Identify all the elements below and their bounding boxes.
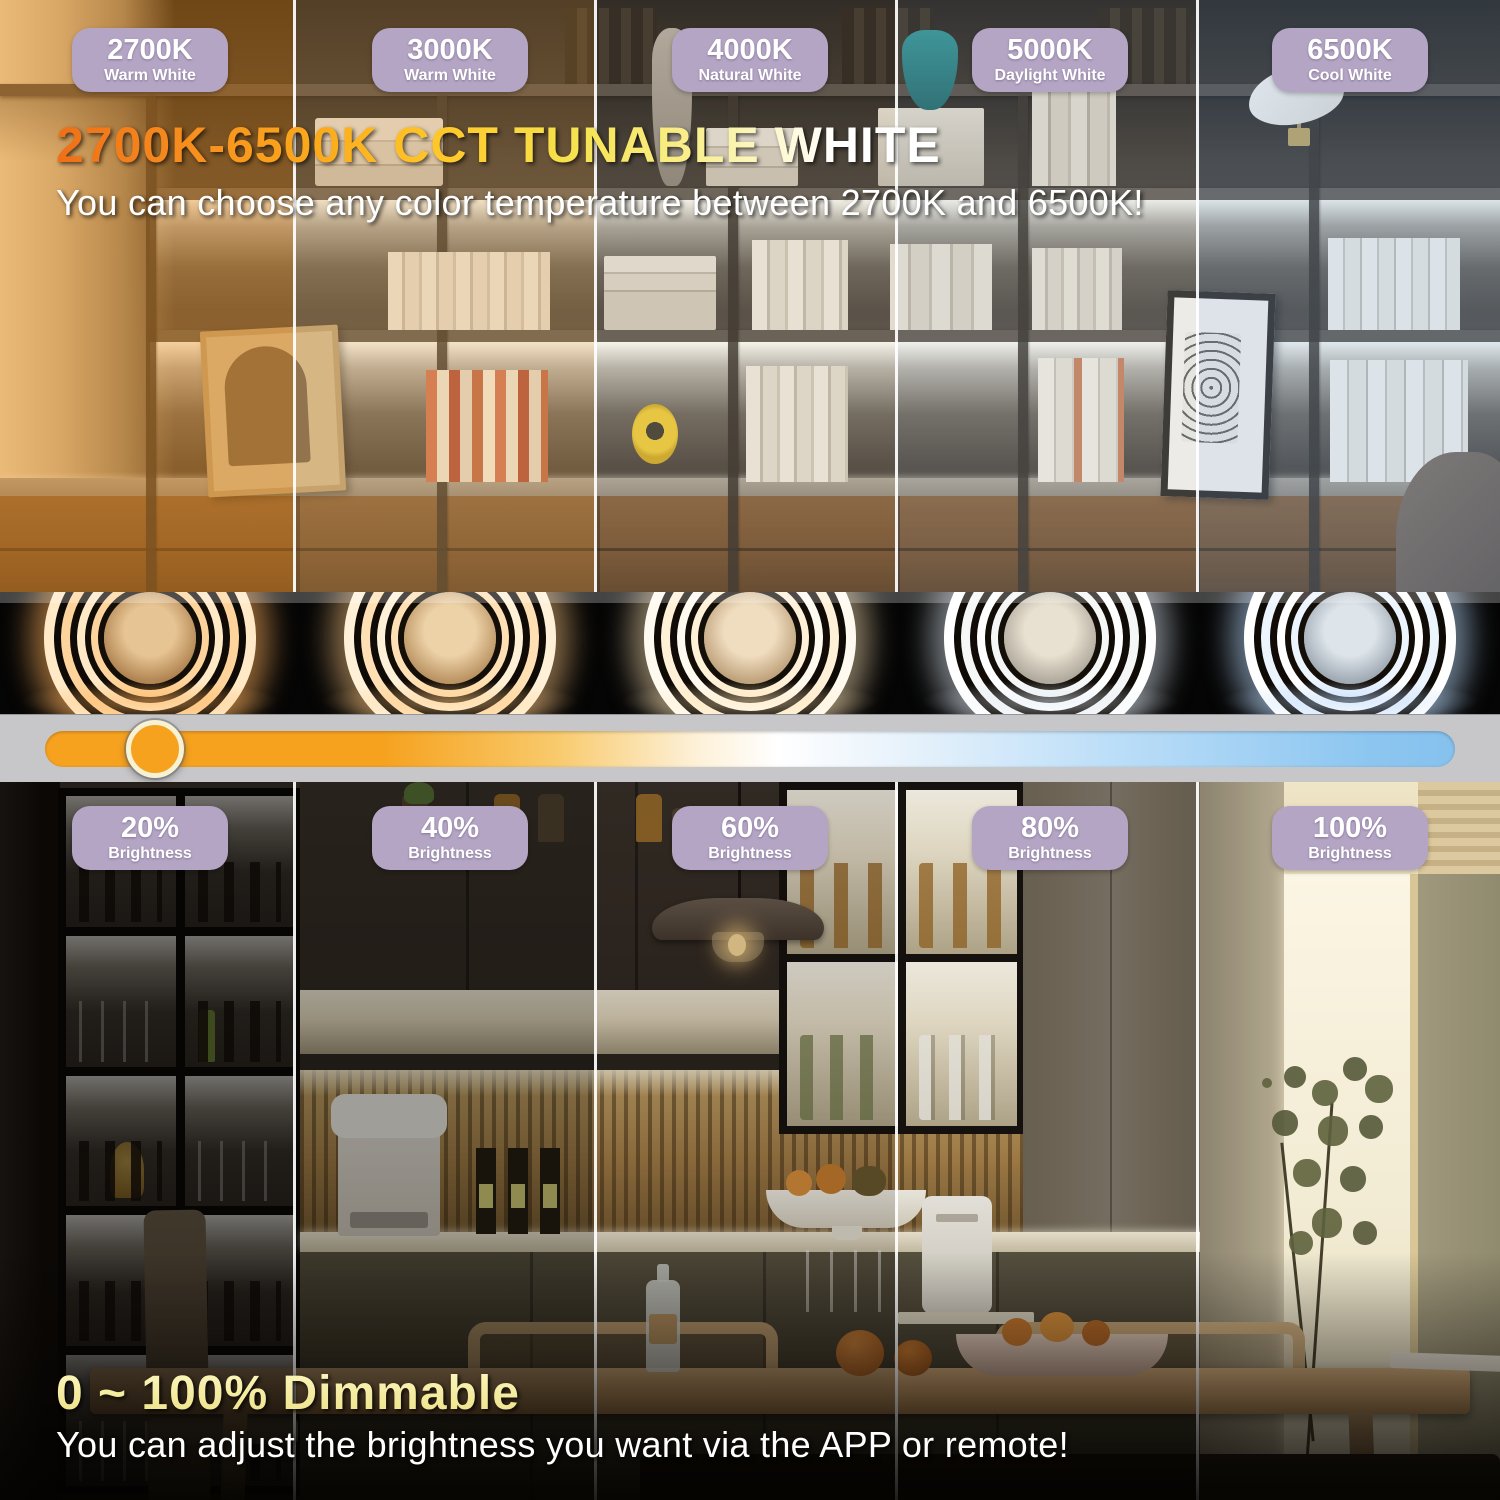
column-divider <box>293 0 296 592</box>
led-coil <box>104 592 196 684</box>
led-spool-row <box>0 592 1500 714</box>
led-spool-3000k <box>300 592 602 714</box>
badge-4000k: 4000K Natural White <box>672 28 828 92</box>
badge-value: 100% <box>1313 813 1387 844</box>
badge-value: 6500K <box>1307 35 1392 66</box>
badge-value: 5000K <box>1007 35 1092 66</box>
badge-60-brightness: 60% Brightness <box>672 806 828 870</box>
badge-label: Cool White <box>1308 66 1392 85</box>
column-divider <box>895 0 898 592</box>
cct-subtitle: You can choose any color temperature bet… <box>56 182 1144 224</box>
dimming-photo-section: 20% Brightness 40% Brightness 60% Bright… <box>0 782 1500 1500</box>
badge-label: Warm White <box>104 66 196 85</box>
badge-label: Natural White <box>698 66 801 85</box>
badge-3000k: 3000K Warm White <box>372 28 528 92</box>
cct-slider-track <box>45 731 1455 767</box>
dimmable-subtitle: You can adjust the brightness you want v… <box>56 1424 1069 1466</box>
column-divider <box>594 0 597 592</box>
badge-value: 60% <box>721 813 779 844</box>
badge-value: 2700K <box>107 35 192 66</box>
badge-6500k: 6500K Cool White <box>1272 28 1428 92</box>
badge-label: Brightness <box>1008 844 1092 863</box>
badge-label: Brightness <box>708 844 792 863</box>
led-spool-6500k <box>1200 592 1500 714</box>
badge-80-brightness: 80% Brightness <box>972 806 1128 870</box>
badge-value: 4000K <box>707 35 792 66</box>
badge-label: Brightness <box>1308 844 1392 863</box>
badge-100-brightness: 100% Brightness <box>1272 806 1428 870</box>
led-coil <box>404 592 496 684</box>
led-strip-product-banner: 2700K-6500K CCT TUNABLE WHITE You can ch… <box>0 0 1500 1500</box>
badge-value: 3000K <box>407 35 492 66</box>
glass-shelf-edge <box>0 592 1500 603</box>
badge-label: Warm White <box>404 66 496 85</box>
badge-label: Daylight White <box>994 66 1105 85</box>
cct-title: 2700K-6500K CCT TUNABLE WHITE <box>56 116 941 174</box>
badge-2700k: 2700K Warm White <box>72 28 228 92</box>
led-spool-5000k <box>900 592 1202 714</box>
led-spool-2700k <box>0 592 302 714</box>
badge-value: 40% <box>421 813 479 844</box>
cct-slider <box>0 714 1500 784</box>
led-spool-4000k <box>600 592 902 714</box>
led-coil <box>1304 592 1396 684</box>
badge-40-brightness: 40% Brightness <box>372 806 528 870</box>
led-coil <box>704 592 796 684</box>
badge-label: Brightness <box>108 844 192 863</box>
badge-label: Brightness <box>408 844 492 863</box>
badge-value: 80% <box>1021 813 1079 844</box>
cct-photo-section: 2700K-6500K CCT TUNABLE WHITE You can ch… <box>0 0 1500 592</box>
cct-slider-knob <box>126 720 184 778</box>
column-divider <box>1196 0 1199 592</box>
badge-value: 20% <box>121 813 179 844</box>
dimmable-title: 0 ~ 100% Dimmable <box>56 1366 520 1421</box>
badge-5000k: 5000K Daylight White <box>972 28 1128 92</box>
led-coil <box>1004 592 1096 684</box>
badge-20-brightness: 20% Brightness <box>72 806 228 870</box>
